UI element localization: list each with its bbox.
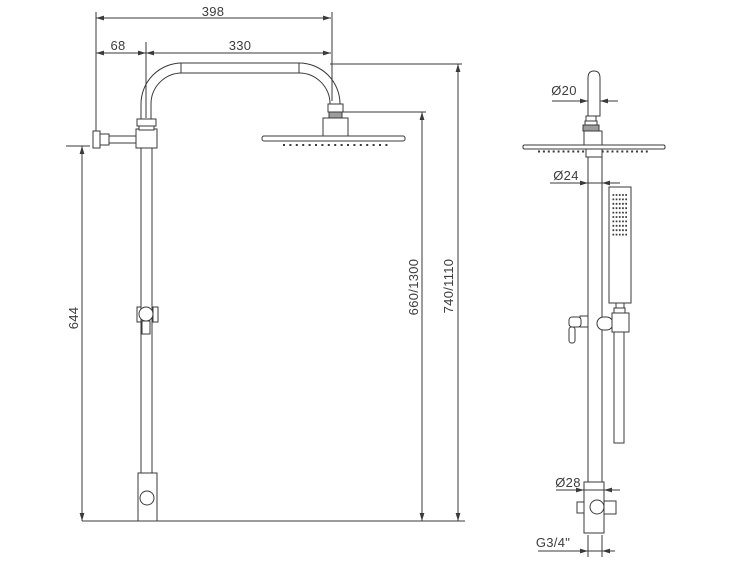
- rain-head-side: [523, 145, 665, 157]
- rain-shower-head: [262, 118, 405, 145]
- cross-fitting: [577, 500, 616, 514]
- side-view: [523, 71, 665, 557]
- dim-total-width-label: 398: [183, 5, 243, 19]
- holder-knob: [597, 317, 613, 330]
- gasket-ring-side: [583, 125, 599, 131]
- dim-overall-height-label: 740/1110: [442, 251, 456, 321]
- gasket-ring: [329, 112, 342, 118]
- drawing-canvas: [0, 0, 756, 567]
- mixer-body-front: [138, 473, 157, 521]
- head-connector-side: [583, 116, 602, 145]
- technical-drawing-page: 398 68 330 644 660/1300 740/1110 Ø20 Ø24…: [0, 0, 756, 567]
- diverter-lever: [569, 316, 588, 343]
- slider-bracket: [137, 307, 158, 334]
- arm-connectors: [137, 104, 343, 130]
- dim-wall-offset-label: 68: [98, 39, 138, 53]
- shower-arm: [146, 63, 335, 119]
- junction-block: [136, 129, 157, 148]
- arm-end-capsule: [588, 71, 600, 116]
- dim-arm-diameter-label: Ø20: [544, 84, 584, 98]
- dim-thread-label: G3/4": [523, 536, 583, 550]
- dim-arm-length-label: 330: [210, 39, 270, 53]
- dim-column-height-label: 644: [67, 298, 81, 338]
- wall-escutcheon: [93, 131, 100, 148]
- dim-head-height-label: 660/1300: [407, 252, 421, 322]
- hand-shower-handle: [614, 332, 624, 443]
- head-plate: [262, 136, 405, 141]
- wall-supply: [93, 129, 157, 148]
- holder-block: [612, 313, 629, 332]
- head-connector: [323, 118, 348, 136]
- dim-body-diameter-label: Ø28: [548, 476, 588, 490]
- dim-pipe-diameter-label: Ø24: [546, 169, 586, 183]
